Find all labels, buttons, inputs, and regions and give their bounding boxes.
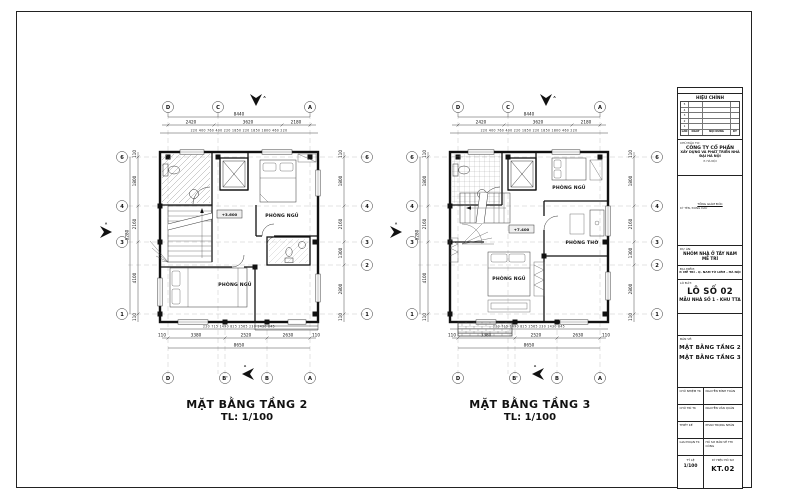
svg-text:2160: 2160 xyxy=(628,218,633,229)
svg-text:3620: 3620 xyxy=(243,120,254,125)
plan-title-tang-3: MẶT BẰNG TẦNG 3 TL: 1/100 xyxy=(430,398,630,423)
svg-text:6: 6 xyxy=(410,155,414,161)
altar-table-icon xyxy=(590,210,604,236)
drawing-section: BẢN VẼ: MẶT BẰNG TẦNG 2 MẶT BẰNG TẦNG 3 xyxy=(678,336,742,388)
svg-text:A: A xyxy=(263,95,266,99)
svg-text:B: B xyxy=(265,376,269,382)
svg-text:8650: 8650 xyxy=(524,343,535,348)
svg-text:PHÒNG THỜ: PHÒNG THỜ xyxy=(565,239,598,246)
svg-text:3380: 3380 xyxy=(191,333,202,338)
staff-name: NGUYỄN ĐÌNH TOÀN xyxy=(704,388,742,404)
balcony xyxy=(458,322,512,336)
door-arc xyxy=(544,216,558,230)
grid-bubbles: D C A D B' B A 6 4 3 1 6 4 3 2 1 xyxy=(407,102,663,384)
svg-text:1800: 1800 xyxy=(132,175,137,186)
svg-text:110: 110 xyxy=(628,150,633,158)
svg-text:3: 3 xyxy=(655,240,659,246)
floor-plan-tang-3: 8440 2420 3620 2180 220 400 760 400 220 … xyxy=(384,86,676,396)
drawing-title-line1: MẶT BẰNG TẦNG 2 xyxy=(678,345,742,351)
title-block: HIỆU CHỈNH 5 4 3 2 1 LẦN NGÀY NỘI DUNG K… xyxy=(677,87,743,489)
revision-col-lan: LẦN xyxy=(681,130,688,135)
svg-text:1800: 1800 xyxy=(628,175,633,186)
lot-model: MẪU NHÀ SỐ 1 - KHU TTA xyxy=(678,298,742,303)
svg-text:8650: 8650 xyxy=(234,343,245,348)
revision-section: HIỆU CHỈNH 5 4 3 2 1 LẦN NGÀY NỘI DUNG K… xyxy=(678,94,742,140)
scale-label: TỶ LỆ xyxy=(678,458,703,462)
svg-text:1: 1 xyxy=(365,312,369,318)
stair-winder xyxy=(462,224,494,244)
investor-label: CHỦ ĐẦU TƯ: xyxy=(678,140,742,145)
signature-note: KÝ TÊN, ĐÓNG DẤU xyxy=(678,206,742,210)
svg-text:110: 110 xyxy=(628,313,633,321)
svg-text:8280: 8280 xyxy=(125,229,130,240)
svg-text:110: 110 xyxy=(158,333,166,338)
bed-icon xyxy=(260,160,296,202)
staff-name: PHAN TRỌNG NHÂN xyxy=(704,422,742,438)
svg-text:110: 110 xyxy=(132,313,137,321)
svg-text:2630: 2630 xyxy=(573,333,584,338)
svg-text:1: 1 xyxy=(410,312,414,318)
svg-text:2160: 2160 xyxy=(422,218,427,229)
svg-text:1: 1 xyxy=(120,312,124,318)
revision-col-ky: KÝ xyxy=(730,130,739,135)
company-name: XÂY DỰNG VÀ PHÁT TRIỂN NHÀ ĐẠI HÀ NỘI xyxy=(678,151,742,159)
bathroom-mid xyxy=(267,237,310,265)
spacer-section xyxy=(678,314,742,336)
elevator-shaft xyxy=(508,158,536,190)
svg-text:220 400 760 400 220 1850: 220 400 760 400 220 1850 220 1850 1800 4… xyxy=(481,129,578,133)
svg-text:4: 4 xyxy=(120,204,124,210)
svg-text:C: C xyxy=(506,105,510,111)
investor-section: CHỦ ĐẦU TƯ: CÔNG TY CỔ PHẦN XÂY DỰNG VÀ … xyxy=(678,140,742,176)
svg-text:2420: 2420 xyxy=(186,120,197,125)
svg-text:2: 2 xyxy=(365,263,369,269)
svg-text:8440: 8440 xyxy=(524,112,535,117)
elevator-shaft xyxy=(220,158,248,190)
svg-text:1300: 1300 xyxy=(338,247,343,258)
bedroom-top: PHÒNG NGỦ xyxy=(552,158,602,191)
drawing-number: KT.02 xyxy=(704,465,742,473)
staff-row: GIAI ĐOẠN TK HỒ SƠ BẢN VẼ THI CÔNG xyxy=(678,439,742,456)
svg-text:PHÒNG NGỦ: PHÒNG NGỦ xyxy=(265,211,299,219)
svg-text:+7.400: +7.400 xyxy=(514,227,530,232)
svg-text:D: D xyxy=(456,105,461,111)
svg-text:PHÒNG NGỦ: PHÒNG NGỦ xyxy=(552,183,586,191)
svg-text:110: 110 xyxy=(602,333,610,338)
svg-text:A: A xyxy=(534,364,537,368)
svg-text:3: 3 xyxy=(410,240,414,246)
altar-room: PHÒNG THỜ xyxy=(544,210,604,246)
svg-text:6: 6 xyxy=(120,155,124,161)
plan-title-text: MẶT BẰNG TẦNG 2 xyxy=(147,398,347,411)
svg-text:2160: 2160 xyxy=(132,218,137,229)
plan-title-tang-2: MẶT BẰNG TẦNG 2 TL: 1/100 xyxy=(147,398,347,423)
mat-icon xyxy=(570,214,584,234)
door-arc xyxy=(232,255,244,267)
svg-text:2800: 2800 xyxy=(338,283,343,294)
title-block-footer: TỶ LỆ 1/100 KÝ HIỆU HỒ SƠ KT.02 xyxy=(678,456,742,488)
revision-col-noidung: NỘI DUNG xyxy=(702,130,730,135)
staff-row: CHỦ NHIỆM TK NGUYỄN ĐÌNH TOÀN xyxy=(678,388,742,405)
elevation-marker: +3.600 xyxy=(217,210,242,218)
svg-text:220 400 760 400 220 1850: 220 400 760 400 220 1850 220 1850 1800 4… xyxy=(191,129,288,133)
plan-title-text: MẶT BẰNG TẦNG 3 xyxy=(430,398,630,411)
svg-text:1800: 1800 xyxy=(338,175,343,186)
svg-text:1300: 1300 xyxy=(628,247,633,258)
company-name: P. HÀ NỘI xyxy=(678,159,742,163)
signature-section: TỔNG GIÁM ĐỐC KÝ TÊN, ĐÓNG DẤU xyxy=(678,176,742,246)
svg-text:A: A xyxy=(308,376,312,382)
svg-text:1: 1 xyxy=(655,312,659,318)
svg-text:110: 110 xyxy=(338,313,343,321)
svg-text:110: 110 xyxy=(338,150,343,158)
svg-text:A: A xyxy=(553,95,556,99)
svg-text:110: 110 xyxy=(422,150,427,158)
svg-text:3: 3 xyxy=(120,240,124,246)
staff-row: CHỦ TRÌ TK NGUYỄN VĂN QUÂN xyxy=(678,405,742,422)
wc-room xyxy=(452,154,500,204)
bed-icon xyxy=(552,158,586,180)
svg-text:2160: 2160 xyxy=(338,218,343,229)
plan-scale-text: TL: 1/100 xyxy=(430,412,630,423)
section-marker-icon xyxy=(390,226,402,238)
plan-scale-text: TL: 1/100 xyxy=(147,412,347,423)
staff-name: HỒ SƠ BẢN VẼ THI CÔNG xyxy=(704,439,742,456)
svg-text:3620: 3620 xyxy=(533,120,544,125)
section-marker-icon xyxy=(532,368,544,380)
svg-text:8280: 8280 xyxy=(415,229,420,240)
staff-name: NGUYỄN VĂN QUÂN xyxy=(704,405,742,421)
svg-text:C: C xyxy=(216,105,220,111)
revision-col-ngay: NGÀY xyxy=(688,130,702,135)
staff-role: CHỦ NHIỆM TK xyxy=(678,388,704,404)
svg-text:A: A xyxy=(598,105,602,111)
section-marker-icon xyxy=(250,94,262,106)
svg-text:110: 110 xyxy=(132,150,137,158)
svg-text:2180: 2180 xyxy=(291,120,302,125)
lot-section: LÔ ĐẤT: LÔ SỐ 02 MẪU NHÀ SỐ 1 - KHU TTA xyxy=(678,280,742,314)
svg-text:B': B' xyxy=(512,376,518,382)
revision-header: HIỆU CHỈNH xyxy=(678,94,742,100)
drawing-number-label: KÝ HIỆU HỒ SƠ xyxy=(704,458,742,462)
svg-text:4: 4 xyxy=(365,204,369,210)
svg-text:6: 6 xyxy=(655,155,659,161)
dimension-text: 8440 2420 3620 2180 220 400 760 400 220 … xyxy=(125,112,344,348)
svg-text:4100: 4100 xyxy=(132,272,137,283)
svg-text:2630: 2630 xyxy=(283,333,294,338)
svg-text:D: D xyxy=(166,376,171,382)
svg-text:3: 3 xyxy=(365,240,369,246)
svg-text:110: 110 xyxy=(448,333,456,338)
staff-section: CHỦ NHIỆM TK NGUYỄN ĐÌNH TOÀN CHỦ TRÌ TK… xyxy=(678,388,742,456)
svg-text:2520: 2520 xyxy=(531,333,542,338)
section-marker-icon xyxy=(540,94,552,106)
project-name: NHÓM NHÀ Ở TÂY NAM MỄ TRÌ xyxy=(678,251,742,261)
svg-text:2520: 2520 xyxy=(241,333,252,338)
bedroom-top: PHÒNG NGỦ xyxy=(260,154,316,236)
svg-text:110: 110 xyxy=(422,313,427,321)
svg-text:A: A xyxy=(105,222,108,226)
bedroom-bottom: PHÒNG NGỦ xyxy=(170,255,252,307)
svg-text:B': B' xyxy=(222,376,228,382)
staff-role: GIAI ĐOẠN TK xyxy=(678,439,704,456)
svg-text:A: A xyxy=(395,222,398,226)
floor-plan-tang-2: 8440 2420 3620 2180 220 400 760 400 220 … xyxy=(92,86,384,396)
door-arc xyxy=(262,224,274,236)
section-marker-icon xyxy=(100,226,112,238)
staff-role: CHỦ TRÌ TK xyxy=(678,405,704,421)
revision-table: 5 4 3 2 1 LẦN NGÀY NỘI DUNG KÝ xyxy=(680,101,740,136)
svg-text:D: D xyxy=(456,376,461,382)
rug-icon xyxy=(488,300,530,312)
svg-text:+3.600: +3.600 xyxy=(222,212,238,217)
drawing-label: BẢN VẼ: xyxy=(678,336,742,341)
scale-value: 1/100 xyxy=(678,464,703,469)
section-marker-icon xyxy=(242,368,254,380)
staff-role: THIẾT KẾ xyxy=(678,422,704,438)
svg-text:6: 6 xyxy=(365,155,369,161)
drawing-title-line2: MẶT BẰNG TẦNG 3 xyxy=(678,355,742,361)
svg-text:220 715 1490 825 2565 230: 220 715 1490 825 2565 230 1430 845 xyxy=(203,325,275,329)
svg-text:4100: 4100 xyxy=(422,272,427,283)
project-section: DỰ ÁN: NHÓM NHÀ Ở TÂY NAM MỄ TRÌ xyxy=(678,246,742,266)
svg-text:PHÒNG NGỦ: PHÒNG NGỦ xyxy=(492,274,526,282)
scale-cell: TỶ LỆ 1/100 xyxy=(678,456,704,488)
svg-text:D: D xyxy=(166,105,171,111)
svg-text:2420: 2420 xyxy=(476,120,487,125)
svg-text:A: A xyxy=(308,105,312,111)
svg-text:4: 4 xyxy=(410,204,414,210)
svg-text:A: A xyxy=(244,364,247,368)
svg-text:4: 4 xyxy=(655,204,659,210)
lot-label: LÔ ĐẤT: xyxy=(678,280,742,285)
svg-text:2180: 2180 xyxy=(581,120,592,125)
svg-text:2: 2 xyxy=(655,263,659,269)
svg-text:2800: 2800 xyxy=(628,283,633,294)
grid-bubbles: D C A D B' B A 6 4 3 1 6 4 3 2 1 xyxy=(117,102,373,384)
drawing-number-cell: KÝ HIỆU HỒ SƠ KT.02 xyxy=(704,456,742,488)
svg-text:1800: 1800 xyxy=(422,175,427,186)
svg-text:A: A xyxy=(598,376,602,382)
bedroom-center: PHÒNG NGỦ xyxy=(450,238,544,312)
svg-text:8440: 8440 xyxy=(234,112,245,117)
elevation-marker: +7.400 xyxy=(509,225,534,233)
location-text: P. MỄ TRÌ - Q. NAM TỪ LIÊM - HÀ NỘI xyxy=(678,271,742,275)
svg-text:110: 110 xyxy=(312,333,320,338)
lot-number: LÔ SỐ 02 xyxy=(678,287,742,297)
wc-room xyxy=(162,154,210,204)
svg-text:B: B xyxy=(555,376,559,382)
drawing-sheet: 8440 2420 3620 2180 220 400 760 400 220 … xyxy=(0,0,800,500)
location-section: ĐỊA ĐIỂM: P. MỄ TRÌ - Q. NAM TỪ LIÊM - H… xyxy=(678,266,742,280)
wardrobe-icon xyxy=(534,262,544,296)
staff-row: THIẾT KẾ PHAN TRỌNG NHÂN xyxy=(678,422,742,439)
